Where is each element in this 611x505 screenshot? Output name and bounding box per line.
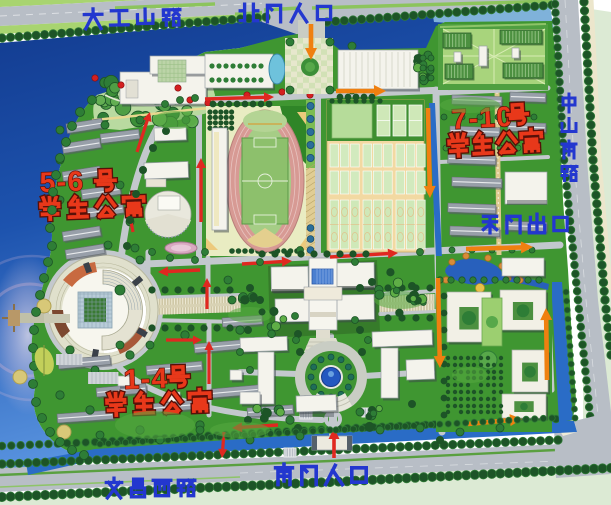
svg-text:5-6: 5-6	[39, 165, 85, 198]
svg-text:1-4: 1-4	[123, 362, 169, 395]
